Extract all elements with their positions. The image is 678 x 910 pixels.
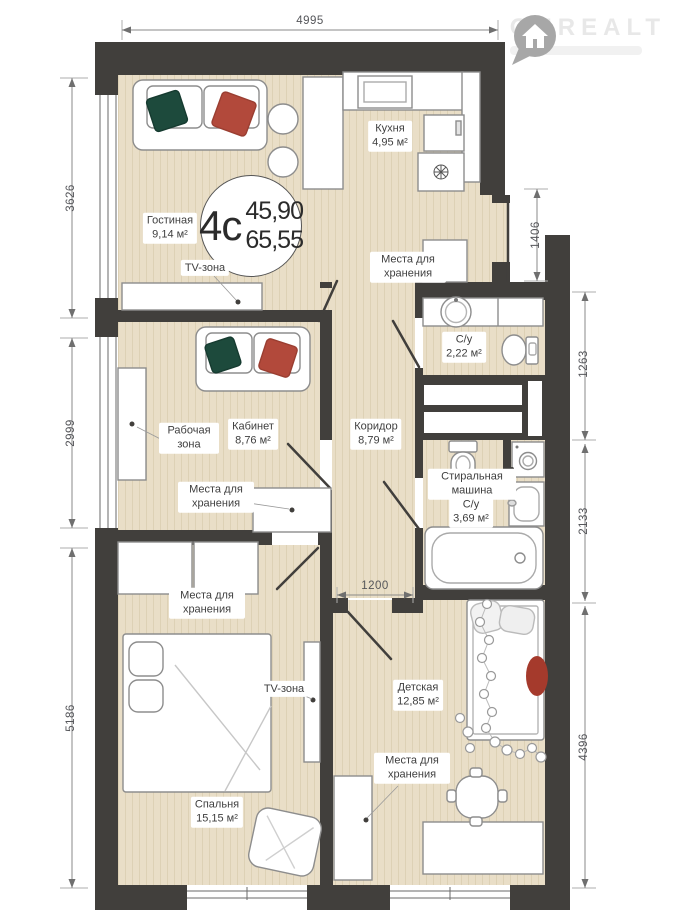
- room-label-bath-large: С/у3,69 м²: [449, 497, 493, 528]
- floorplan-page: 4с 45,90 65,55 Гостиная9,14 м² Кухня4,95…: [0, 0, 678, 910]
- room-label-corridor: Коридор8,79 м²: [350, 419, 401, 450]
- zone-label-work-zone: Рабочая зона: [159, 423, 219, 454]
- toilet-icon: [502, 335, 538, 365]
- dim-right-bottom: 4396: [578, 733, 590, 761]
- zone-label-storage-kids: Места для хранения: [374, 753, 450, 784]
- pouf-bedroom: [246, 806, 323, 878]
- zone-label-storage-bedroom: Места для хранения: [169, 588, 245, 619]
- console-living: [303, 77, 343, 189]
- room-label-kids: Детская12,85 м²: [393, 680, 443, 711]
- desk-kids: [423, 822, 543, 874]
- room-label-living: Гостиная9,14 м²: [143, 213, 197, 244]
- sofa-office: [196, 327, 310, 391]
- dim-top: 4995: [296, 15, 324, 27]
- zone-label-storage-hall: Места для хранения: [370, 252, 446, 283]
- tv-console-living: [122, 283, 262, 310]
- wardrobe-bedroom-1: [118, 542, 192, 594]
- floorplan-drawing: [0, 0, 678, 910]
- washing-machine-icon: [512, 442, 544, 477]
- pillow: [129, 680, 163, 712]
- plan-area-total: 65,55: [245, 226, 303, 255]
- logo-pin-icon: [510, 14, 558, 66]
- pillow: [129, 642, 163, 676]
- wardrobe-kids: [334, 776, 372, 880]
- zone-label-tv-bedroom: TV-зона: [260, 681, 308, 697]
- zone-label-storage-office: Места для хранения: [178, 482, 254, 513]
- logo: ONREALT: [510, 14, 666, 55]
- bed-bedroom: [123, 634, 271, 792]
- dim-right-niche: 1406: [530, 221, 542, 249]
- chair-living-1: [268, 104, 298, 134]
- dim-left-bottom: 5186: [65, 704, 77, 732]
- room-label-kitchen: Кухня4,95 м²: [368, 121, 412, 152]
- room-label-bath-small: С/у2,22 м²: [442, 332, 486, 363]
- dim-left-top: 3626: [65, 184, 77, 212]
- dim-corridor: 1200: [361, 580, 389, 592]
- zone-label-washing-machine: Стиральная машина: [428, 469, 516, 500]
- dim-right-top: 1263: [578, 350, 590, 378]
- wardrobe-bedroom-2: [194, 542, 258, 594]
- zone-label-tv-living: TV-зона: [181, 260, 229, 276]
- plan-type: 4с: [199, 202, 241, 250]
- room-label-bedroom: Спальня15,15 м²: [191, 797, 243, 828]
- pillow-red: [526, 656, 548, 696]
- bathtub-icon: [425, 527, 543, 589]
- plan-area-living: 45,90: [245, 197, 303, 226]
- dim-left-mid: 2999: [65, 419, 77, 447]
- room-label-office: Кабинет8,76 м²: [228, 419, 278, 450]
- sofa-living: [133, 80, 267, 150]
- chair-living-2: [268, 147, 298, 177]
- dim-right-mid: 2133: [578, 507, 590, 535]
